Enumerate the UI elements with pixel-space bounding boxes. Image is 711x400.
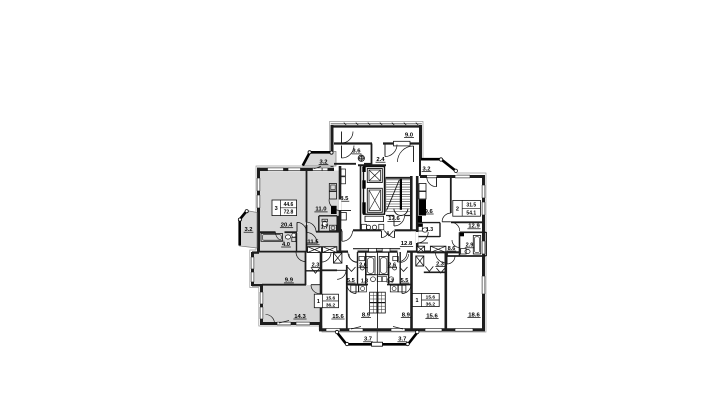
svg-text:44.6: 44.6 [284,202,294,208]
svg-text:15.6: 15.6 [426,295,436,301]
svg-text:1.3: 1.3 [426,227,433,233]
svg-text:31.5: 31.5 [466,202,476,208]
svg-text:72.8: 72.8 [284,210,294,216]
svg-text:3: 3 [275,206,278,212]
svg-text:1.7: 1.7 [321,225,329,231]
svg-text:1: 1 [415,298,418,304]
svg-text:36.2: 36.2 [326,302,336,308]
svg-text:1: 1 [317,299,320,305]
svg-text:15.6: 15.6 [326,296,336,302]
svg-text:2: 2 [456,206,459,212]
svg-text:1.3: 1.3 [386,279,393,285]
svg-text:54.1: 54.1 [466,210,476,216]
svg-text:1.3: 1.3 [361,279,368,285]
svg-text:36.2: 36.2 [426,301,436,307]
